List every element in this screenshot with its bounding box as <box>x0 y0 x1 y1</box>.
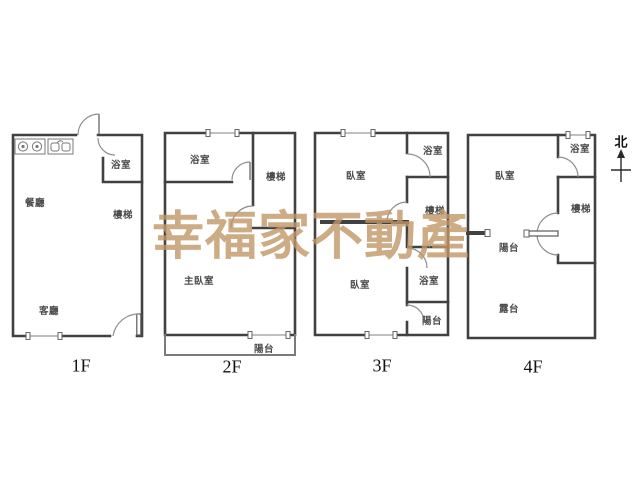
room-label-bathroom: 浴室 <box>419 273 439 287</box>
door-arc <box>98 138 115 155</box>
window-bracket <box>58 333 62 340</box>
room-label-bathroom: 浴室 <box>570 141 590 155</box>
room-label-balcony: 陽台 <box>422 313 442 327</box>
watermark-text: 幸福家不動產 <box>152 209 470 265</box>
floorplan-page: 幸福家不動產 北 餐廳 浴室 樓梯 客廳 浴室 樓梯 主臥室 陽台 臥室 浴室 … <box>0 0 640 480</box>
window-bracket <box>566 132 570 139</box>
stairs-wall <box>558 177 595 263</box>
room-label-dining: 餐廳 <box>25 195 45 209</box>
stove-burners-icon <box>15 139 45 154</box>
door-arc <box>558 157 578 177</box>
room-label-bedroom: 臥室 <box>495 168 515 182</box>
room-label-bedroom: 臥室 <box>350 277 370 291</box>
door-leaf <box>529 231 558 236</box>
window-bracket <box>365 332 369 339</box>
room-label-bedroom: 臥室 <box>346 168 366 182</box>
door-arc <box>232 162 250 180</box>
window-bracket <box>341 130 345 137</box>
floorplan-4f <box>468 132 595 339</box>
window-bracket <box>248 332 252 339</box>
room-label-living: 客廳 <box>39 303 59 317</box>
bathroom-wall <box>165 133 253 205</box>
kitchen-sink-icon <box>48 139 73 154</box>
floor-label-2f: 2F <box>222 357 241 378</box>
window-bracket <box>586 132 590 139</box>
room-label-stairs: 樓梯 <box>571 201 591 215</box>
room-label-bathroom: 浴室 <box>111 157 131 171</box>
room-label-bathroom: 浴室 <box>190 152 210 166</box>
window-bracket <box>235 130 239 137</box>
room-label-stairs: 樓梯 <box>113 207 133 221</box>
floor-label-3f: 3F <box>372 356 391 377</box>
balcony-wall <box>165 335 295 355</box>
floor-label-1f: 1F <box>71 356 90 377</box>
door-arc <box>113 314 139 336</box>
room-label-stairs: 樓梯 <box>266 169 286 183</box>
room-label-master-bedroom: 主臥室 <box>184 273 214 287</box>
door-arc <box>407 154 430 177</box>
window-bracket <box>371 130 375 137</box>
room-label-balcony: 陽台 <box>254 341 274 355</box>
door-arc <box>78 114 99 135</box>
north-label: 北 <box>614 132 627 151</box>
divider-bracket <box>485 230 490 237</box>
floor-label-4f: 4F <box>523 357 542 378</box>
window-bracket <box>206 130 210 137</box>
door-leaf <box>137 314 141 335</box>
window-bracket <box>286 332 290 339</box>
door-bracket <box>524 230 529 237</box>
room-label-balcony: 陽台 <box>499 240 519 254</box>
room-label-terrace: 露台 <box>499 301 519 315</box>
window-bracket <box>26 333 30 340</box>
floorplan-1f <box>13 114 142 340</box>
room-label-bathroom: 浴室 <box>423 143 443 157</box>
north-arrow-icon <box>611 149 631 182</box>
window-bracket <box>393 332 397 339</box>
